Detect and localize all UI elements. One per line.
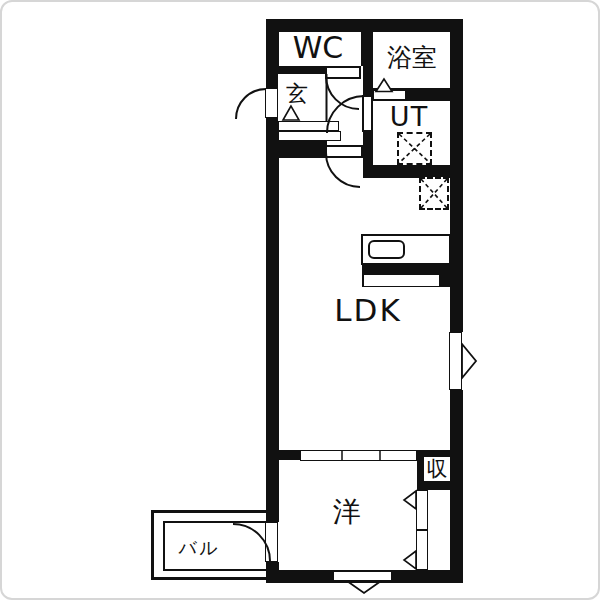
wc-label: WC bbox=[293, 33, 344, 63]
kitchen-pass-through bbox=[364, 275, 439, 286]
western-window-panel bbox=[333, 571, 392, 581]
wc-door-panel bbox=[325, 66, 361, 79]
washer-space-icon bbox=[397, 132, 432, 165]
utility-label: UT bbox=[390, 103, 428, 130]
ldk-window-triangle-icon bbox=[462, 344, 476, 378]
bath-label: 浴室 bbox=[387, 45, 437, 70]
balcony-label: バル bbox=[179, 539, 220, 557]
closet-door-panel-2 bbox=[416, 530, 428, 570]
entrance-door-panel bbox=[265, 88, 278, 118]
entrance-step-lower bbox=[278, 131, 341, 141]
entrance-label: 玄 bbox=[286, 83, 308, 105]
bath-door-panel bbox=[373, 90, 406, 100]
closet-door-panel-1 bbox=[416, 490, 428, 530]
ldk-label: LDK bbox=[334, 295, 401, 326]
kitchen-sink-icon bbox=[368, 240, 405, 259]
ldk-window-panel bbox=[449, 332, 462, 390]
western-room-label: 洋 bbox=[333, 498, 361, 526]
floorplan-canvas: WC 浴室 玄 UT LDK 洋 収 バル bbox=[0, 0, 600, 600]
ldk-western-sliding-door bbox=[300, 450, 417, 461]
entrance-step-upper bbox=[278, 121, 339, 131]
entrance-door-arc-icon bbox=[236, 89, 266, 119]
hall-ldk-door-panel bbox=[325, 145, 363, 158]
balcony-door-panel bbox=[265, 522, 278, 562]
fridge-space-icon bbox=[419, 177, 449, 210]
utility-door-panel bbox=[362, 95, 373, 132]
storage-label: 収 bbox=[427, 459, 448, 480]
